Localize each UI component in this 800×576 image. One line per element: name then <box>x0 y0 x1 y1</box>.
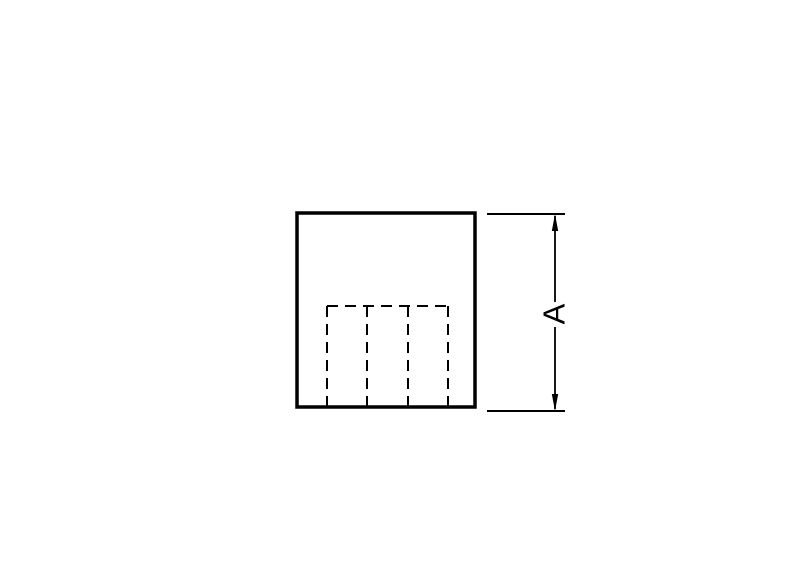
dimension-label: A <box>537 303 572 324</box>
drawing-canvas: A <box>0 0 800 576</box>
dimension-arrow-up-icon <box>552 214 558 231</box>
drawing-svg: A <box>0 0 800 576</box>
dimension-arrow-down-icon <box>552 394 558 411</box>
